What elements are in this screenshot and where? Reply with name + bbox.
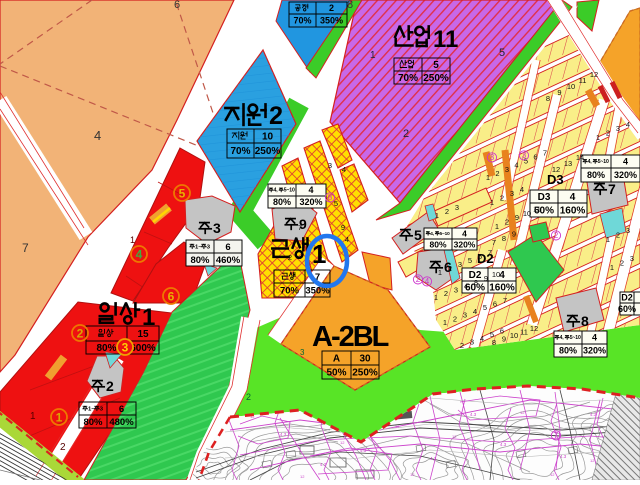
svg-text:80%: 80% [559,346,577,356]
svg-text:14: 14 [576,153,584,162]
svg-text:5: 5 [414,227,422,243]
svg-text:3: 3 [626,226,630,235]
svg-text:8: 8 [347,0,353,11]
svg-text:D3: D3 [547,172,564,187]
svg-text:3: 3 [490,153,495,162]
svg-text:0: 0 [606,159,609,165]
svg-text:80%: 80% [429,240,446,250]
svg-text:3: 3 [458,260,462,269]
svg-text:2: 2 [60,442,66,453]
svg-text:12: 12 [520,410,525,415]
svg-text:70%: 70% [280,285,300,296]
svg-text:8: 8 [502,234,506,243]
svg-text:4: 4 [345,235,349,244]
svg-text:3: 3 [505,165,509,174]
svg-text:6: 6 [168,290,175,304]
svg-text:11: 11 [579,76,587,85]
svg-text:70%: 70% [398,73,418,84]
svg-text:3: 3 [522,151,527,160]
svg-text:7: 7 [503,296,507,305]
svg-text:4: 4 [342,165,346,174]
svg-text:2: 2 [329,3,334,13]
svg-text:4: 4 [425,277,430,286]
svg-text:80%: 80% [273,197,291,207]
svg-text:320%: 320% [299,197,322,207]
svg-text:2: 2 [460,341,464,350]
svg-text:4.3: 4.3 [470,412,477,417]
svg-text:8: 8 [581,313,589,329]
svg-text:7: 7 [492,238,496,247]
svg-text:11: 11 [520,328,528,337]
svg-text:1: 1 [443,318,447,327]
svg-text:4: 4 [626,120,630,129]
svg-text:6: 6 [225,242,230,253]
svg-text:6: 6 [119,404,124,415]
svg-text:4: 4 [570,192,576,203]
svg-text:12: 12 [552,165,560,174]
svg-text:3: 3 [463,311,467,320]
svg-text:50%: 50% [326,368,346,379]
svg-text:12: 12 [590,458,595,463]
svg-text:4: 4 [514,161,518,170]
svg-text:350%: 350% [320,16,343,26]
svg-text:D3: D3 [538,192,551,203]
svg-text:460%: 460% [216,255,241,266]
svg-text:7: 7 [608,181,616,197]
svg-text:2: 2 [403,128,409,140]
svg-text:2: 2 [288,253,292,262]
svg-text:5: 5 [334,199,338,208]
svg-text:70%: 70% [293,16,311,26]
svg-text:9: 9 [484,274,488,283]
svg-text:2: 2 [620,259,624,268]
svg-text:4: 4 [136,248,143,262]
svg-text:8: 8 [474,278,478,287]
svg-text:11: 11 [533,204,541,213]
svg-text:7: 7 [488,248,492,257]
svg-text:3: 3 [470,337,474,346]
svg-text:5: 5 [433,60,439,71]
svg-text:4.3: 4.3 [500,442,507,447]
svg-text:80%: 80% [96,343,116,354]
svg-text:4: 4 [94,128,101,143]
svg-text:0: 0 [447,231,450,236]
svg-text:0: 0 [578,335,581,341]
svg-text:1: 1 [434,293,438,302]
svg-text:80%: 80% [587,170,605,180]
svg-text:2: 2 [246,392,251,402]
svg-text:2: 2 [505,218,509,227]
svg-text:3: 3 [213,220,221,236]
svg-text:2: 2 [616,231,620,240]
svg-text:1: 1 [370,50,376,61]
svg-text:320%: 320% [583,346,606,356]
svg-text:9: 9 [512,230,516,239]
svg-text:,: , [433,231,434,236]
svg-text:1: 1 [606,235,610,244]
svg-text:9: 9 [502,335,506,344]
svg-text:2: 2 [606,129,610,138]
svg-text:12: 12 [452,434,457,439]
svg-text:~: ~ [198,244,202,250]
svg-text:160%: 160% [489,283,515,294]
svg-text:2: 2 [453,314,457,323]
svg-text:320%: 320% [614,170,637,180]
svg-text:480%: 480% [109,417,134,428]
svg-text:4: 4 [462,229,467,239]
svg-text:600%: 600% [130,343,156,354]
svg-text:8: 8 [492,338,496,347]
svg-text:10: 10 [567,82,575,91]
svg-text:12: 12 [590,70,598,79]
svg-text:60%: 60% [618,304,636,314]
svg-text:9: 9 [557,88,561,97]
svg-text:9: 9 [341,223,345,232]
svg-text:2: 2 [495,169,499,178]
svg-text:~: ~ [91,406,95,412]
svg-text:3: 3 [454,285,458,294]
svg-text:4: 4 [464,282,468,291]
svg-text:7: 7 [298,223,302,232]
svg-text:2: 2 [416,275,421,284]
svg-text:9: 9 [515,213,519,222]
svg-text:4: 4 [308,185,313,195]
svg-text:7: 7 [554,431,559,440]
svg-text:3: 3 [630,254,634,263]
svg-text:320%: 320% [454,240,476,250]
svg-text:1: 1 [130,235,135,245]
svg-text:12: 12 [340,440,345,445]
svg-text:10: 10 [262,132,274,143]
svg-text:3: 3 [616,124,620,133]
svg-text:4.3: 4.3 [430,456,437,461]
svg-text:1: 1 [596,133,600,142]
svg-text:8: 8 [328,193,333,202]
svg-text:4: 4 [480,334,484,343]
svg-text:30: 30 [359,354,371,365]
svg-text:7: 7 [543,149,547,158]
svg-text:80%: 80% [190,255,210,266]
svg-text:6: 6 [174,0,180,11]
svg-text:13: 13 [564,159,572,168]
svg-text:1: 1 [142,304,155,331]
svg-text:4.3: 4.3 [590,412,597,417]
svg-text:A-2BL: A-2BL [312,321,389,353]
svg-text:2: 2 [500,194,504,203]
svg-text:2: 2 [77,327,84,341]
svg-text:D2: D2 [621,293,633,303]
svg-text:6: 6 [533,153,537,162]
svg-text:3: 3 [328,161,332,170]
svg-text:12: 12 [300,474,305,479]
svg-text:2: 2 [445,207,449,216]
svg-text:5: 5 [499,47,505,59]
svg-text:1: 1 [30,411,36,422]
svg-text:1: 1 [486,173,490,182]
svg-text:1: 1 [490,198,494,207]
svg-text:2: 2 [106,378,114,394]
svg-text:80%: 80% [83,417,103,428]
svg-text:5: 5 [483,303,487,312]
svg-text:10: 10 [523,209,531,218]
svg-text:5: 5 [179,187,186,201]
svg-text:10: 10 [510,331,518,340]
svg-text:6: 6 [493,300,497,309]
svg-text:3: 3 [300,348,305,357]
svg-text:2: 2 [448,264,452,273]
svg-text:12: 12 [530,324,538,333]
svg-text:4.3: 4.3 [560,454,567,459]
svg-text:250%: 250% [352,368,378,379]
svg-text:1: 1 [56,411,63,425]
svg-text:250%: 250% [423,73,449,84]
svg-text:0: 0 [292,188,295,194]
svg-text:1: 1 [435,211,439,220]
svg-text:10: 10 [492,270,500,279]
svg-text:12: 12 [395,424,400,429]
svg-text:4: 4 [473,307,477,316]
svg-text:2: 2 [554,231,559,240]
svg-text:1: 1 [610,263,614,272]
svg-text:3: 3 [510,189,514,198]
svg-text:6: 6 [478,252,482,261]
svg-text:3: 3 [455,203,459,212]
svg-text:1: 1 [438,268,442,277]
svg-text:1: 1 [495,222,499,231]
svg-text:2: 2 [444,289,448,298]
svg-text:4.3: 4.3 [280,432,287,437]
svg-text:70%: 70% [230,146,250,157]
svg-text:2: 2 [269,102,283,130]
svg-text:4: 4 [592,333,597,343]
svg-text:250%: 250% [255,146,281,157]
svg-text:11: 11 [433,26,458,53]
svg-text:4: 4 [623,157,628,167]
svg-text:A: A [333,354,340,365]
svg-text:3: 3 [122,341,129,355]
svg-text:12: 12 [410,472,415,477]
svg-text:160%: 160% [560,206,586,217]
svg-text:4: 4 [520,185,524,194]
svg-text:5: 5 [468,256,472,265]
svg-text:8: 8 [546,94,550,103]
svg-text:12: 12 [550,472,555,477]
svg-text:7: 7 [22,241,29,255]
